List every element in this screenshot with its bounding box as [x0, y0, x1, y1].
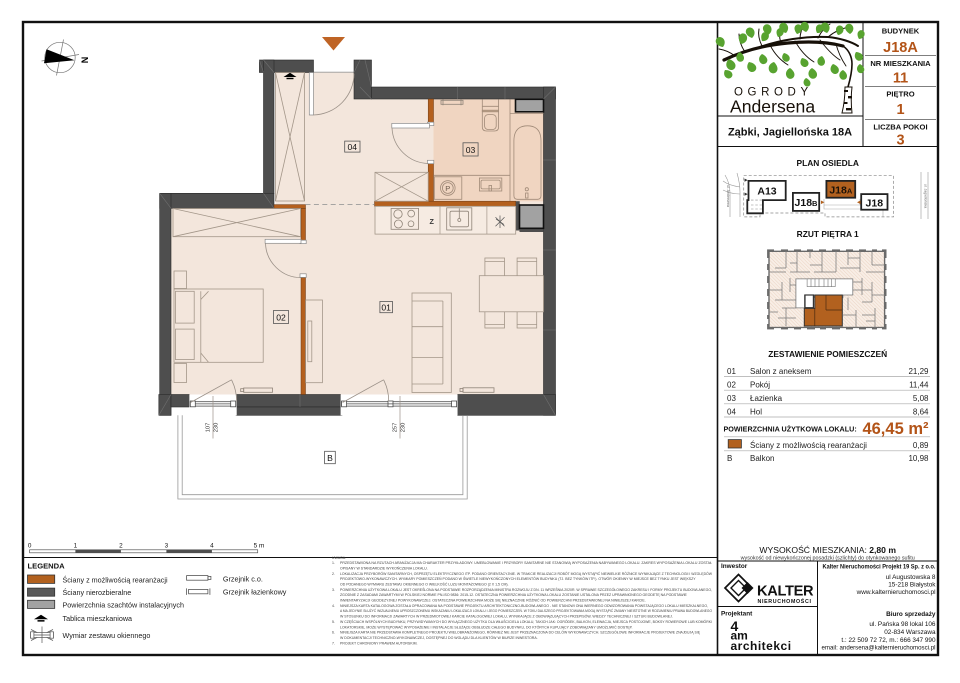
svg-text:Powierzchnia szachtów instalac: Powierzchnia szachtów instalacyjnych [63, 600, 184, 609]
svg-text:2: 2 [119, 543, 123, 550]
svg-text:6.: 6. [332, 631, 335, 635]
svg-text:email: andersena@kalternieruch: email: andersena@kalternieruchomosci.pl [822, 645, 936, 652]
svg-text:J18A: J18A [883, 40, 918, 56]
svg-text:2.: 2. [332, 572, 335, 576]
svg-text:Łazienka: Łazienka [750, 394, 783, 403]
svg-text:B: B [727, 454, 732, 463]
svg-text:0,89: 0,89 [913, 441, 929, 450]
svg-text:04: 04 [348, 142, 358, 152]
svg-text:Ściany z możliwością rearanżac: Ściany z możliwością rearanżacji [750, 441, 867, 450]
svg-text:ul. Andersena: ul. Andersena [726, 185, 730, 207]
svg-text:J18B: J18B [795, 197, 819, 209]
svg-text:0: 0 [28, 543, 32, 550]
svg-text:15-218 Białystok: 15-218 Białystok [888, 581, 936, 588]
svg-text:ZGODNIE Z ZASADAMI ZAWARTYMI W: ZGODNIE Z ZASADAMI ZAWARTYMI W POLSKIEJ … [340, 592, 688, 597]
svg-text:Ząbki, Jagiellońska 18A: Ząbki, Jagiellońska 18A [728, 127, 852, 139]
svg-text:4.: 4. [332, 604, 335, 608]
svg-text:1: 1 [74, 543, 78, 550]
svg-text:Biuro sprzedaży: Biuro sprzedaży [886, 611, 936, 618]
svg-text:Ściany nierozbieralne: Ściany nierozbieralne [63, 588, 132, 597]
svg-text:W STOSUNKU DO INFORMACJI ZAWAR: W STOSUNKU DO INFORMACJI ZAWARTYCH W PRZ… [340, 614, 673, 619]
svg-text:B: B [327, 453, 333, 463]
svg-text:UWAGA:: UWAGA: [332, 556, 346, 560]
svg-text:7.: 7. [332, 641, 335, 645]
svg-text:02: 02 [727, 381, 736, 390]
svg-text:230: 230 [401, 423, 407, 433]
svg-text:5,08: 5,08 [913, 394, 929, 403]
svg-text:3: 3 [165, 543, 169, 550]
svg-text:WYSOKOŚĆ MIESZKANIA: 2,80 m: WYSOKOŚĆ MIESZKANIA: 2,80 m [759, 544, 896, 555]
svg-text:ul Augustowska 8: ul Augustowska 8 [886, 574, 936, 581]
svg-text:BUDYNEK: BUDYNEK [882, 27, 920, 36]
svg-text:Z: Z [430, 217, 435, 226]
svg-text:5.: 5. [332, 620, 335, 624]
svg-text:architekci: architekci [731, 639, 792, 653]
svg-text:11,44: 11,44 [909, 381, 929, 390]
svg-text:ZESTAWIENIE POMIESZCZEŃ: ZESTAWIENIE POMIESZCZEŃ [768, 348, 887, 359]
svg-text:107: 107 [206, 423, 212, 433]
svg-text:LEGENDA: LEGENDA [28, 562, 66, 571]
svg-text:Wymiar zestawu okiennego: Wymiar zestawu okiennego [63, 631, 151, 640]
svg-text:RZUT PIĘTRA 1: RZUT PIĘTRA 1 [797, 229, 859, 239]
svg-text:ul. Jagiellońska: ul. Jagiellońska [924, 184, 928, 209]
svg-text:PIĘTRO: PIĘTRO [886, 90, 914, 99]
svg-text:N: N [80, 57, 90, 64]
svg-text:3.: 3. [332, 588, 335, 592]
svg-text:POWIERZCHNIA UŻYTKOWA LOKALU J: POWIERZCHNIA UŻYTKOWA LOKALU JEST OKREŚL… [340, 587, 712, 592]
svg-text:LICZBA POKOI: LICZBA POKOI [873, 123, 927, 132]
svg-text:01: 01 [727, 367, 736, 376]
svg-text:NINIEJSZA KARTA KATALOGOWA ZOS: NINIEJSZA KARTA KATALOGOWA ZOSTAŁA OPRAC… [340, 604, 708, 608]
svg-text:Balkon: Balkon [750, 454, 774, 463]
svg-text:Grzejnik c.o.: Grzejnik c.o. [223, 575, 263, 584]
svg-text:Kalter Nieruchomości Projekt 1: Kalter Nieruchomości Projekt 19 Sp. z o.… [823, 564, 936, 571]
svg-text:3: 3 [896, 133, 904, 149]
svg-text:LOKATORSKIE, MOŻE WYSTĘPOWAĆ W: LOKATORSKIE, MOŻE WYSTĘPOWAĆ WYPOSAŻENIE… [340, 624, 633, 629]
svg-text:OD PODANEGO WYMIARU ZESTAWU OK: OD PODANEGO WYMIARU ZESTAWU OKIENNEGO O … [340, 582, 509, 587]
svg-text:230: 230 [214, 423, 220, 433]
svg-text:J18A: J18A [829, 184, 853, 196]
svg-text:A MA JEDYNIE SŁUŻYĆ WIZUALNEMU: A MA JEDYNIE SŁUŻYĆ WIZUALNEMU UPROSZCZO… [340, 608, 712, 613]
svg-text:11: 11 [893, 71, 908, 87]
svg-text:LOKALIZACJA PRZYBORÓW SANITARN: LOKALIZACJA PRZYBORÓW SANITARNYCH, OSPRZ… [340, 571, 713, 576]
svg-text:PROJEKT CHRONIONY PRAWEM AUTOR: PROJEKT CHRONIONY PRAWEM AUTORSKIM. [340, 641, 417, 645]
svg-text:21,29: 21,29 [908, 367, 929, 376]
svg-text:01: 01 [381, 302, 391, 312]
svg-text:Pokój: Pokój [750, 381, 770, 390]
svg-text:POWIERZCHNIA UŻYTKOWA LOKALU:: POWIERZCHNIA UŻYTKOWA LOKALU: [724, 425, 857, 434]
svg-text:Grzejnik łazienkowy: Grzejnik łazienkowy [223, 588, 287, 597]
svg-text:NINIEJSZA KARTA NIE PRZEDSTAWI: NINIEJSZA KARTA NIE PRZEDSTAWIA KOMPLETN… [340, 630, 701, 635]
svg-text:03: 03 [466, 145, 476, 155]
svg-text:04: 04 [727, 407, 736, 416]
svg-text:02-834 Warszawa: 02-834 Warszawa [884, 629, 936, 636]
svg-text:5 m: 5 m [254, 543, 265, 550]
svg-text:KALTER: KALTER [757, 584, 814, 600]
svg-text:PLAN OSIEDLA: PLAN OSIEDLA [797, 158, 859, 168]
svg-text:Salon z aneksem: Salon z aneksem [750, 367, 812, 376]
svg-text:ul. Pańska 98 lokal 106: ul. Pańska 98 lokal 106 [869, 621, 936, 628]
svg-text:www.kalternieruchomosci.pl: www.kalternieruchomosci.pl [856, 589, 936, 596]
svg-text:Inwestor: Inwestor [721, 563, 748, 570]
svg-text:Tablica mieszkaniowa: Tablica mieszkaniowa [63, 614, 133, 623]
svg-text:A13: A13 [757, 186, 776, 198]
svg-text:02: 02 [276, 313, 286, 323]
svg-text:46,45 m²: 46,45 m² [862, 420, 929, 438]
svg-text:1.: 1. [332, 561, 335, 565]
svg-text:8,64: 8,64 [913, 407, 929, 416]
svg-text:W CZĘŚCIACH WSPÓLNYCH BUDYNKU,: W CZĘŚCIACH WSPÓLNYCH BUDYNKU, PRZYWIDYW… [340, 619, 712, 624]
svg-text:OPISANY W STANDARDZIE WYKOŃCZE: OPISANY W STANDARDZIE WYKOŃCZENIA LOKALU… [340, 566, 428, 570]
svg-text:Ściany z możliwością rearanżac: Ściany z możliwością rearanżacji [63, 575, 168, 584]
svg-text:PRZEDSTAWIONA NA RZUTACH ARANŻ: PRZEDSTAWIONA NA RZUTACH ARANŻACJA MA CH… [340, 560, 712, 565]
svg-text:NIERUCHOMOŚCI: NIERUCHOMOŚCI [758, 598, 812, 605]
svg-text:1: 1 [896, 102, 904, 118]
svg-text:Hol: Hol [750, 407, 762, 416]
svg-text:Projektant: Projektant [721, 611, 753, 618]
svg-text:W DOKUMENTACJI TECHNICZNO-WYKO: W DOKUMENTACJI TECHNICZNO-WYKONAWCZEJ, D… [340, 635, 538, 640]
svg-text:P: P [445, 184, 450, 193]
svg-text:t.: 22 509 72 72, m.: 666 347: t.: 22 509 72 72, m.: 666 347 990 [841, 637, 936, 644]
svg-text:PROJEKTOWO-WYKONAWCZYCH. WYMIA: PROJEKTOWO-WYKONAWCZYCH. WYMIARY POMIESZ… [340, 576, 696, 581]
svg-text:Andersena: Andersena [730, 97, 815, 117]
svg-text:10,98: 10,98 [908, 454, 929, 463]
svg-text:NR MIESZKANIA: NR MIESZKANIA [870, 59, 931, 68]
svg-text:INWENTARYZACJI GEODEZYJNEJ POW: INWENTARYZACJI GEODEZYJNEJ POWYKONAWCZEJ… [340, 598, 646, 603]
svg-text:J18: J18 [866, 198, 884, 210]
svg-text:4: 4 [210, 543, 214, 550]
svg-text:03: 03 [727, 394, 736, 403]
svg-text:257: 257 [393, 423, 399, 433]
